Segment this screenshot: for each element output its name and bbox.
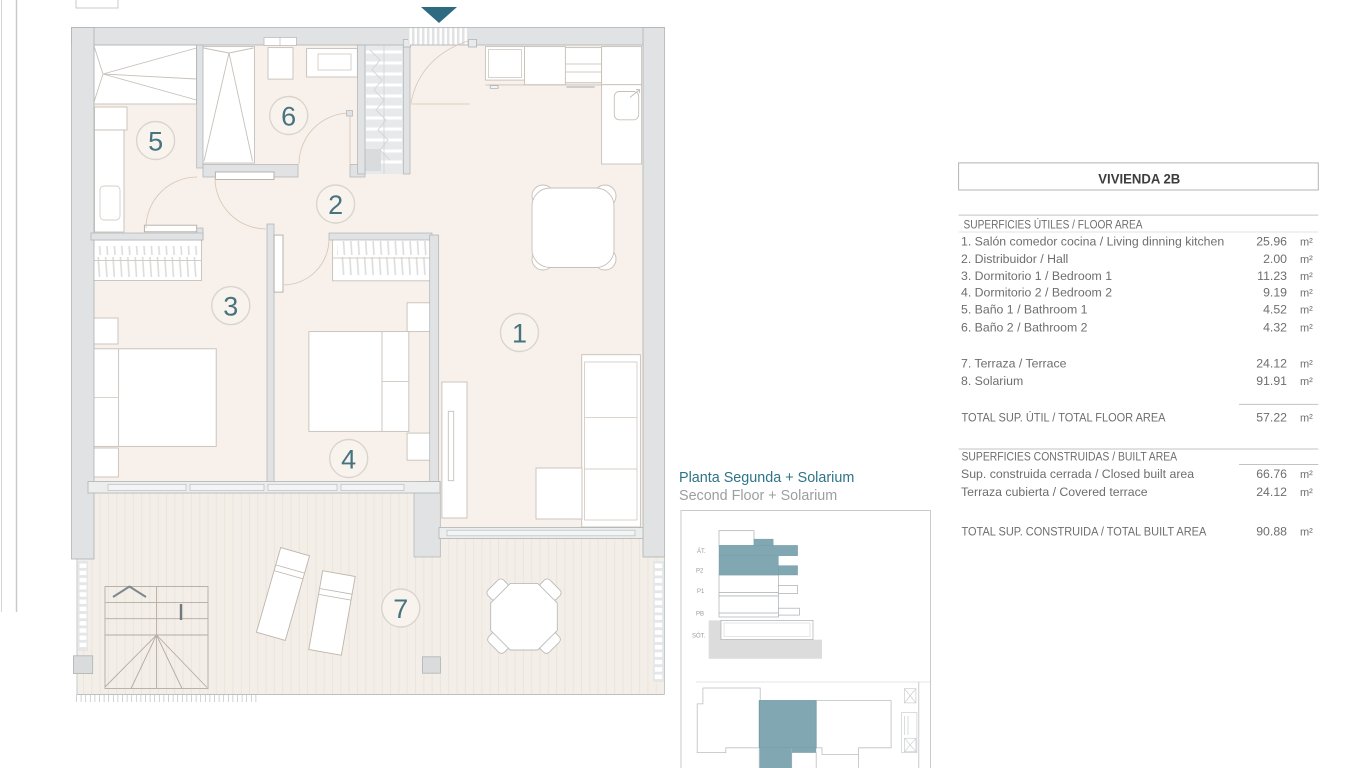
svg-text:P2: P2 bbox=[696, 569, 704, 575]
svg-text:SUPERFICIES ÚTILES / FLOOR ARE: SUPERFICIES ÚTILES / FLOOR AREA bbox=[964, 217, 1144, 232]
svg-text:6. Baño 2 / Bathroom 2: 6. Baño 2 / Bathroom 2 bbox=[961, 321, 1088, 335]
svg-text:m²: m² bbox=[1300, 288, 1313, 300]
svg-text:90.88: 90.88 bbox=[1256, 525, 1287, 539]
svg-text:24.12: 24.12 bbox=[1256, 357, 1287, 371]
svg-text:m²: m² bbox=[1300, 271, 1313, 283]
svg-text:m²: m² bbox=[1300, 413, 1313, 425]
svg-text:2.00: 2.00 bbox=[1263, 252, 1287, 266]
svg-text:1: 1 bbox=[512, 318, 527, 348]
svg-text:4. Dormitorio 2 / Bedroom 2: 4. Dormitorio 2 / Bedroom 2 bbox=[961, 286, 1112, 300]
svg-text:9.19: 9.19 bbox=[1263, 286, 1287, 300]
svg-text:SUPERFICIES CONSTRUIDAS / BUIL: SUPERFICIES CONSTRUIDAS / BUILT AREA bbox=[962, 450, 1178, 464]
svg-text:6: 6 bbox=[281, 101, 296, 131]
svg-text:2. Distribuidor / Hall: 2. Distribuidor / Hall bbox=[961, 252, 1068, 266]
svg-text:m²: m² bbox=[1300, 376, 1313, 388]
svg-text:VIVIENDA 2B: VIVIENDA 2B bbox=[1098, 172, 1180, 187]
svg-text:Terraza cubierta / Covered ter: Terraza cubierta / Covered terrace bbox=[961, 485, 1148, 499]
svg-text:11.23: 11.23 bbox=[1257, 269, 1287, 283]
svg-text:ÁT.: ÁT. bbox=[697, 548, 706, 555]
svg-text:m²: m² bbox=[1300, 469, 1313, 481]
svg-text:m²: m² bbox=[1300, 323, 1313, 335]
svg-text:7. Terraza / Terrace: 7. Terraza / Terrace bbox=[961, 357, 1067, 371]
svg-text:m²: m² bbox=[1300, 237, 1313, 249]
svg-text:4.52: 4.52 bbox=[1263, 303, 1287, 317]
svg-text:5: 5 bbox=[148, 126, 163, 156]
svg-text:25.96: 25.96 bbox=[1256, 235, 1287, 249]
svg-text:3. Dormitorio 1 / Bedroom 1: 3. Dormitorio 1 / Bedroom 1 bbox=[961, 269, 1112, 283]
svg-text:Planta Segunda + Solarium: Planta Segunda + Solarium bbox=[679, 469, 854, 486]
svg-text:m²: m² bbox=[1300, 359, 1313, 371]
svg-text:24.12: 24.12 bbox=[1256, 485, 1287, 499]
svg-text:m²: m² bbox=[1300, 305, 1313, 317]
svg-text:3: 3 bbox=[223, 292, 238, 322]
svg-text:m²: m² bbox=[1300, 527, 1313, 539]
svg-text:P1: P1 bbox=[697, 589, 705, 595]
svg-text:Second Floor + Solarium: Second Floor + Solarium bbox=[679, 487, 837, 504]
svg-text:TOTAL SUP. CONSTRUIDA / TOTAL: TOTAL SUP. CONSTRUIDA / TOTAL BUILT AREA bbox=[962, 525, 1207, 539]
svg-text:Sup. construida cerrada / Clos: Sup. construida cerrada / Closed built a… bbox=[961, 467, 1194, 481]
svg-text:8. Solarium: 8. Solarium bbox=[961, 374, 1023, 388]
svg-text:4.32: 4.32 bbox=[1263, 321, 1287, 335]
svg-text:1. Salón comedor cocina / Livi: 1. Salón comedor cocina / Living dinning… bbox=[961, 235, 1224, 249]
svg-text:66.76: 66.76 bbox=[1256, 467, 1287, 481]
svg-text:m²: m² bbox=[1300, 487, 1313, 499]
svg-text:2: 2 bbox=[328, 190, 343, 220]
svg-text:7: 7 bbox=[393, 594, 408, 624]
svg-text:4: 4 bbox=[341, 444, 356, 474]
svg-text:SÓT.: SÓT. bbox=[692, 633, 706, 640]
svg-text:PB: PB bbox=[696, 612, 704, 618]
svg-text:91.91: 91.91 bbox=[1256, 374, 1287, 388]
svg-text:5. Baño 1 / Bathroom 1: 5. Baño 1 / Bathroom 1 bbox=[961, 303, 1088, 317]
svg-text:57.22: 57.22 bbox=[1256, 411, 1287, 425]
svg-text:m²: m² bbox=[1300, 254, 1313, 266]
svg-text:TOTAL SUP. ÚTIL / TOTAL FLOOR: TOTAL SUP. ÚTIL / TOTAL FLOOR AREA bbox=[962, 410, 1167, 425]
